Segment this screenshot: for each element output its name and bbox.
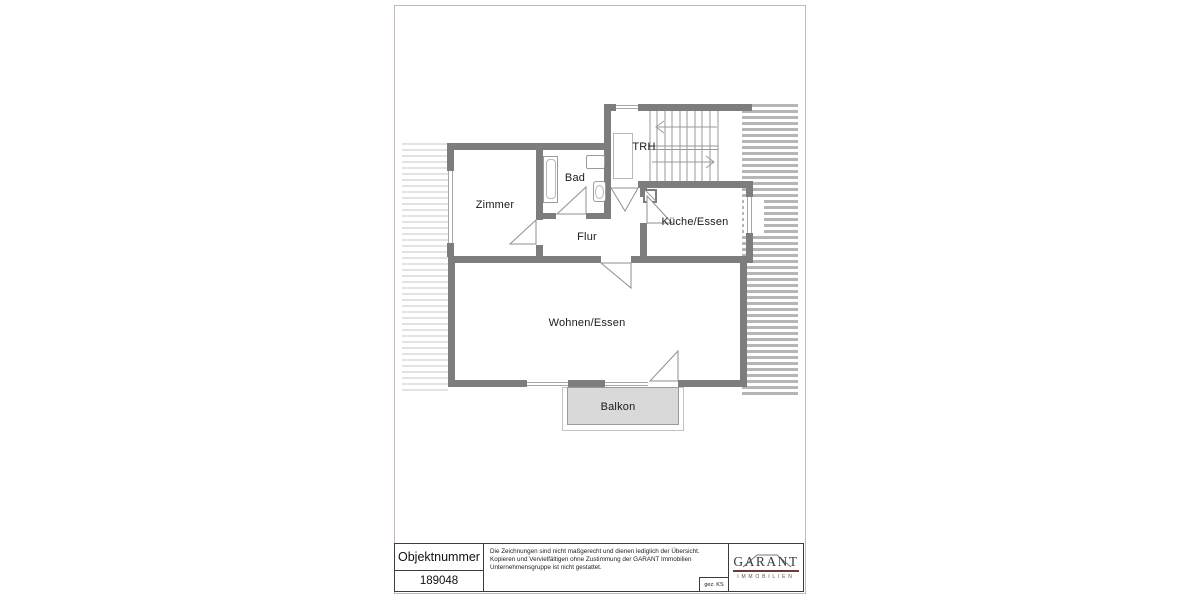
garant-logo: GARANT IMMOBILIEN	[733, 555, 799, 580]
door-zimmer	[510, 220, 536, 244]
disclaimer-cell: Die Zeichnungen sind nicht maßgerecht un…	[484, 544, 729, 591]
room-label-bad: Bad	[565, 172, 585, 184]
room-label-flur: Flur	[577, 231, 597, 243]
disclaimer-line: Kopieren und Vervielfältigen ohne Zustim…	[490, 556, 723, 564]
page: { "plan": { "wall_color": "#7d7d7d", "ro…	[0, 0, 1200, 600]
room-label-wohnen: Wohnen/Essen	[549, 317, 626, 329]
title-block: Objektnummer 189048 Die Zeichnungen sind…	[394, 543, 804, 592]
stair-landing-line	[648, 146, 718, 150]
disclaimer-line: Die Zeichnungen sind nicht maßgerecht un…	[490, 548, 723, 556]
room-label-balkon: Balkon	[601, 401, 636, 413]
logo-underline	[733, 570, 799, 572]
door-wohnen	[601, 263, 631, 288]
logo-cell: GARANT IMMOBILIEN	[729, 544, 803, 591]
door-balkon	[650, 351, 678, 381]
object-number-cell: Objektnummer 189048	[395, 544, 484, 591]
object-number-label: Objektnummer	[395, 544, 483, 571]
room-label-zimmer: Zimmer	[476, 199, 514, 211]
door-bad	[557, 187, 586, 214]
stair-down-arrow-icon	[652, 156, 714, 168]
disclaimer-line: Unternehmensgruppe ist nicht gestattet.	[490, 564, 723, 572]
object-number-value: 189048	[395, 571, 483, 591]
logo-name: GARANT	[733, 555, 799, 569]
signed-box: gez. KS	[699, 577, 728, 591]
door-trh-flur	[611, 188, 638, 211]
room-label-trh: TRH	[632, 141, 655, 153]
room-label-kueche: Küche/Essen	[661, 216, 728, 228]
logo-subtitle: IMMOBILIEN	[733, 574, 799, 580]
plan-linework	[400, 100, 800, 440]
